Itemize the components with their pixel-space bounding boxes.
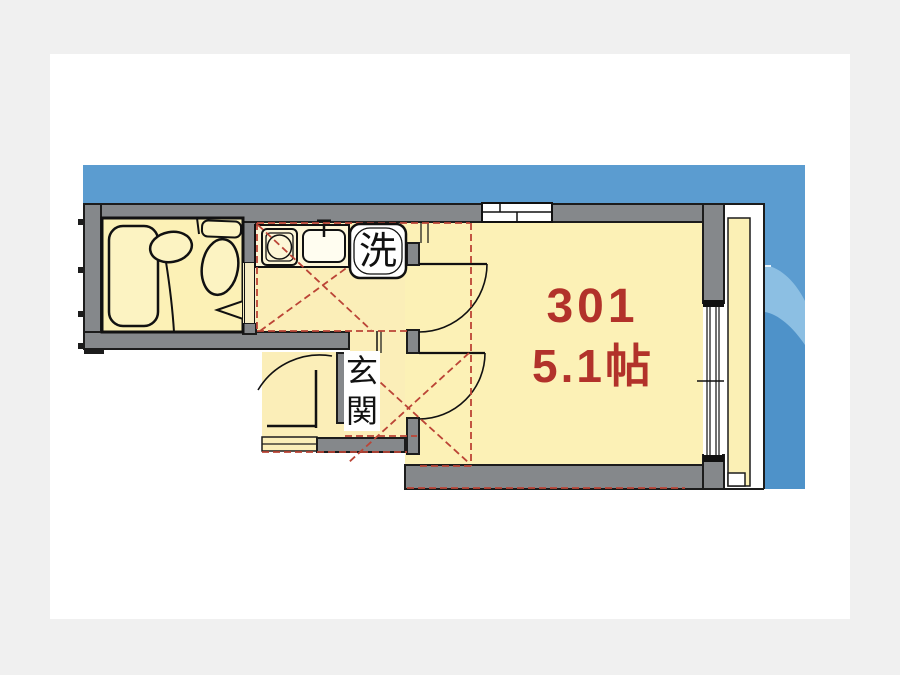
wall-bottom-left <box>84 332 349 349</box>
balcony-floor <box>728 218 750 486</box>
bathroom <box>102 218 256 332</box>
wall-step-cap <box>84 348 104 354</box>
wall-bath-right-lower <box>243 323 256 334</box>
balcony <box>728 218 750 486</box>
balcony-step-notch <box>728 473 745 486</box>
floor-plan-page: 301 5.1帖 洗 玄関 <box>0 0 900 675</box>
wall-room-left-a <box>407 243 419 265</box>
top-window <box>482 203 552 222</box>
toilet-tank-icon <box>202 220 242 237</box>
room-size-label: 5.1帖 <box>498 343 688 389</box>
wall-entrance-bottom <box>317 438 405 452</box>
wall-left <box>84 204 101 349</box>
entrance-label: 玄関 <box>344 351 380 431</box>
wall-right-upper <box>703 204 724 303</box>
laundry-label: 洗 <box>351 229 405 275</box>
wall-bottom-main <box>405 465 723 489</box>
bathtub-icon <box>109 226 158 326</box>
room-number-label: 301 <box>530 283 655 331</box>
floor-plan-drawing <box>0 0 900 675</box>
kitchen-counter <box>255 221 349 267</box>
wall-room-left-b <box>407 330 419 353</box>
